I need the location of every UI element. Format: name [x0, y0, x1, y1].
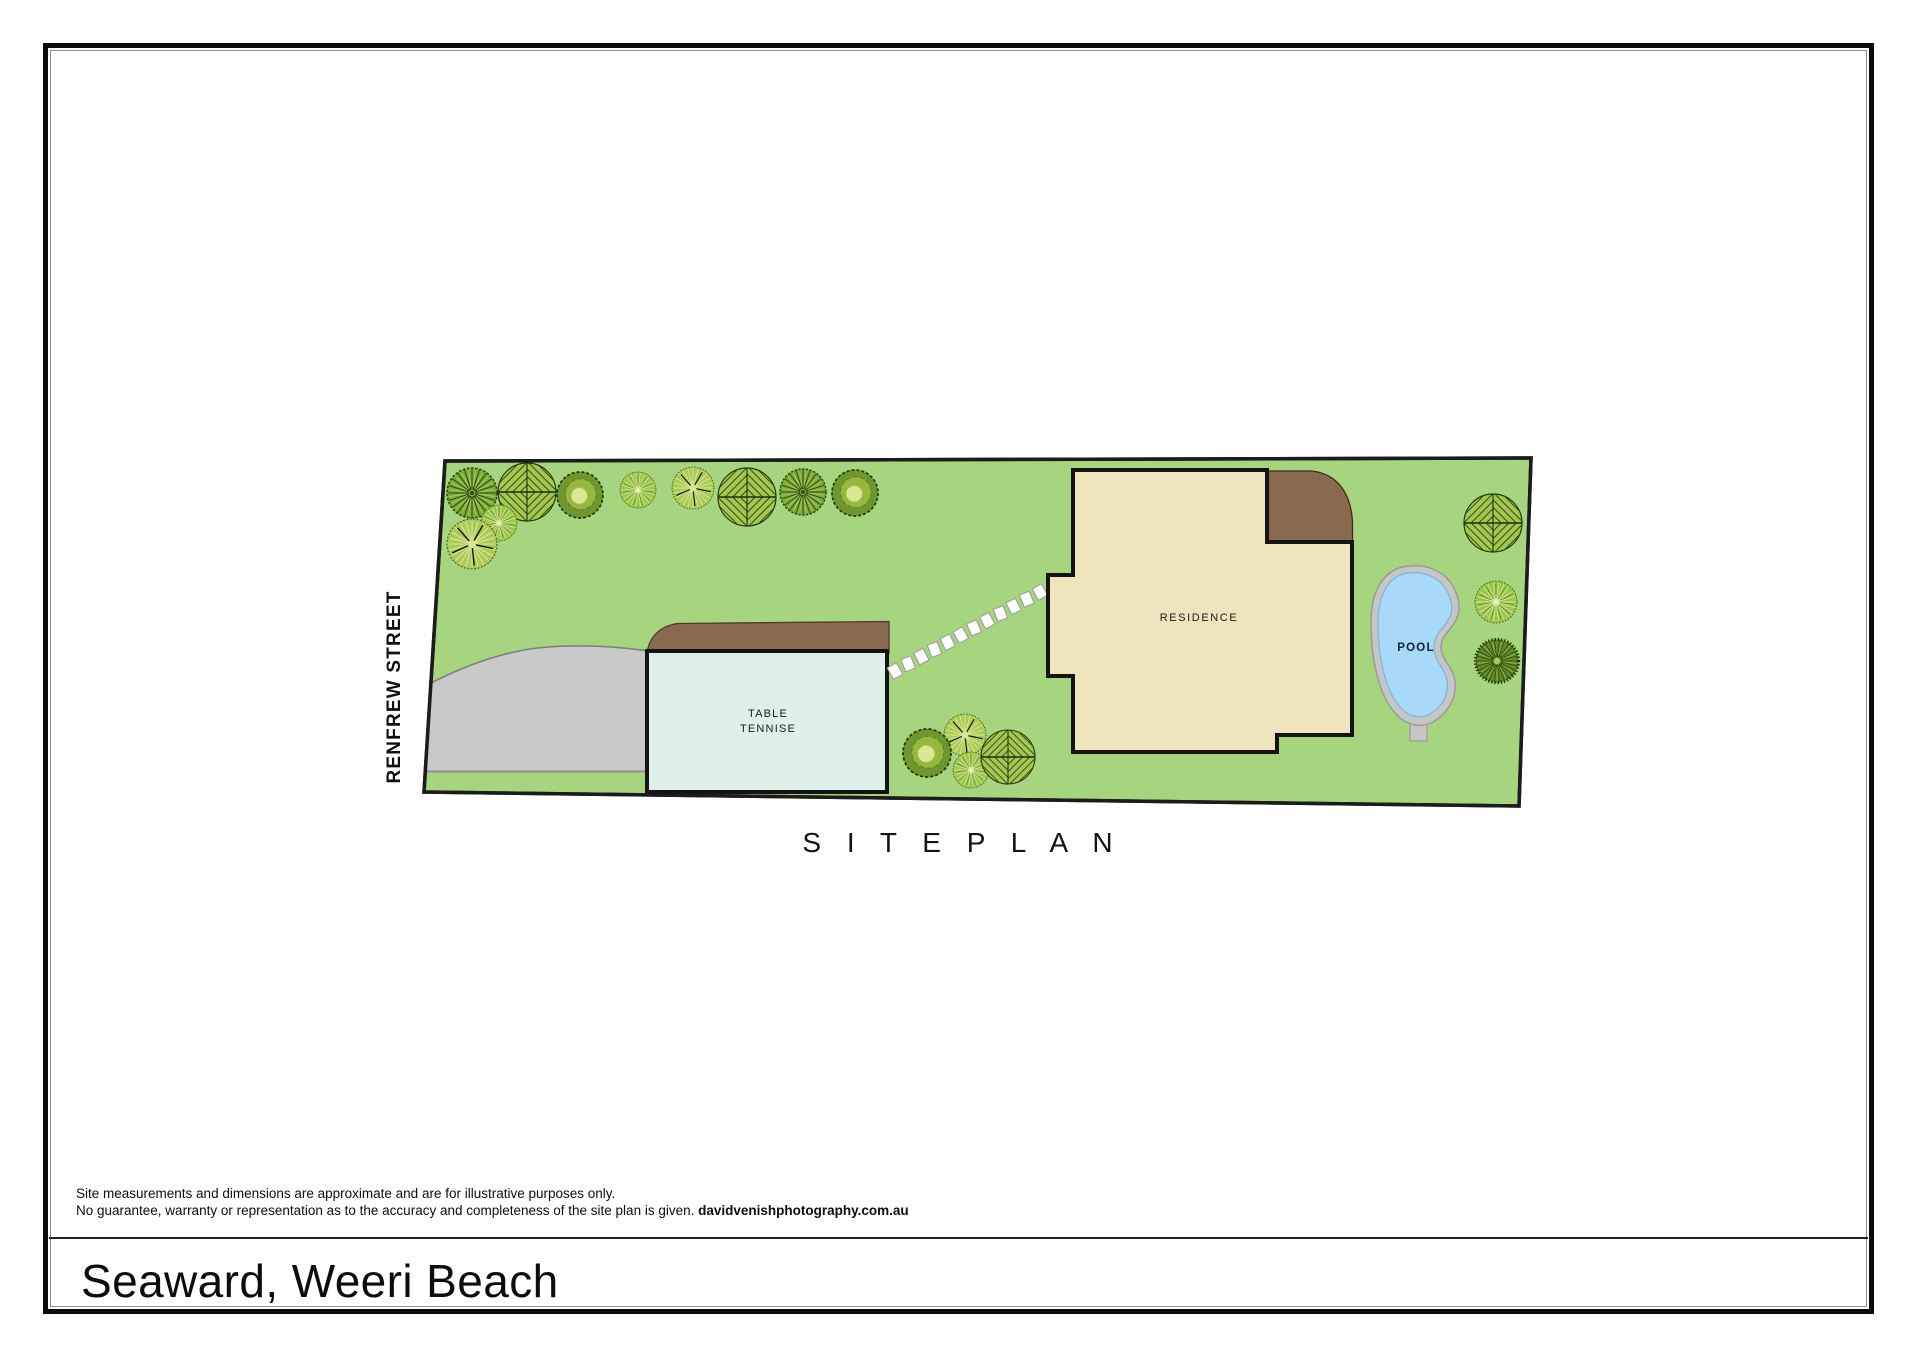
- title-divider-line: [49, 1237, 1868, 1239]
- site-plan-title: S I T E P L A N: [602, 827, 1322, 859]
- tree-chevron: [718, 468, 776, 526]
- tree-starburst: [780, 469, 826, 515]
- table-tennis-deck: [647, 622, 889, 654]
- tree-blob: [832, 470, 878, 516]
- site-plan-graphic: [0, 0, 1920, 1358]
- table-tennis-label-line2: TENNISE: [693, 722, 843, 737]
- tree-blob: [903, 729, 951, 777]
- tree-spiky: [1475, 639, 1518, 682]
- property-title: Seaward, Weeri Beach: [81, 1254, 1781, 1308]
- disclaimer-line2-text: No guarantee, warranty or representation…: [76, 1203, 694, 1218]
- photography-credit: davidvenishphotography.com.au: [698, 1203, 909, 1218]
- tree-blob: [557, 472, 603, 518]
- tree-starlight: [620, 472, 656, 508]
- tree-palm: [672, 467, 714, 509]
- street-label: RENFREW STREET: [384, 587, 406, 787]
- disclaimer: Site measurements and dimensions are app…: [76, 1186, 1176, 1219]
- tree-palm: [447, 519, 497, 569]
- residence-label: RESIDENCE: [1119, 612, 1279, 624]
- table-tennis-label-line1: TABLE: [693, 707, 843, 722]
- tree-chevron: [1464, 494, 1522, 552]
- pool-label: POOL: [1366, 642, 1466, 654]
- tree-starlight: [1475, 581, 1517, 623]
- page: { "page": { "title": "Seaward, Weeri Bea…: [0, 0, 1920, 1358]
- disclaimer-line1: Site measurements and dimensions are app…: [76, 1186, 1176, 1203]
- tree-chevron: [981, 730, 1035, 784]
- table-tennis-label: TABLE TENNISE: [693, 707, 843, 737]
- disclaimer-line2: No guarantee, warranty or representation…: [76, 1203, 1176, 1220]
